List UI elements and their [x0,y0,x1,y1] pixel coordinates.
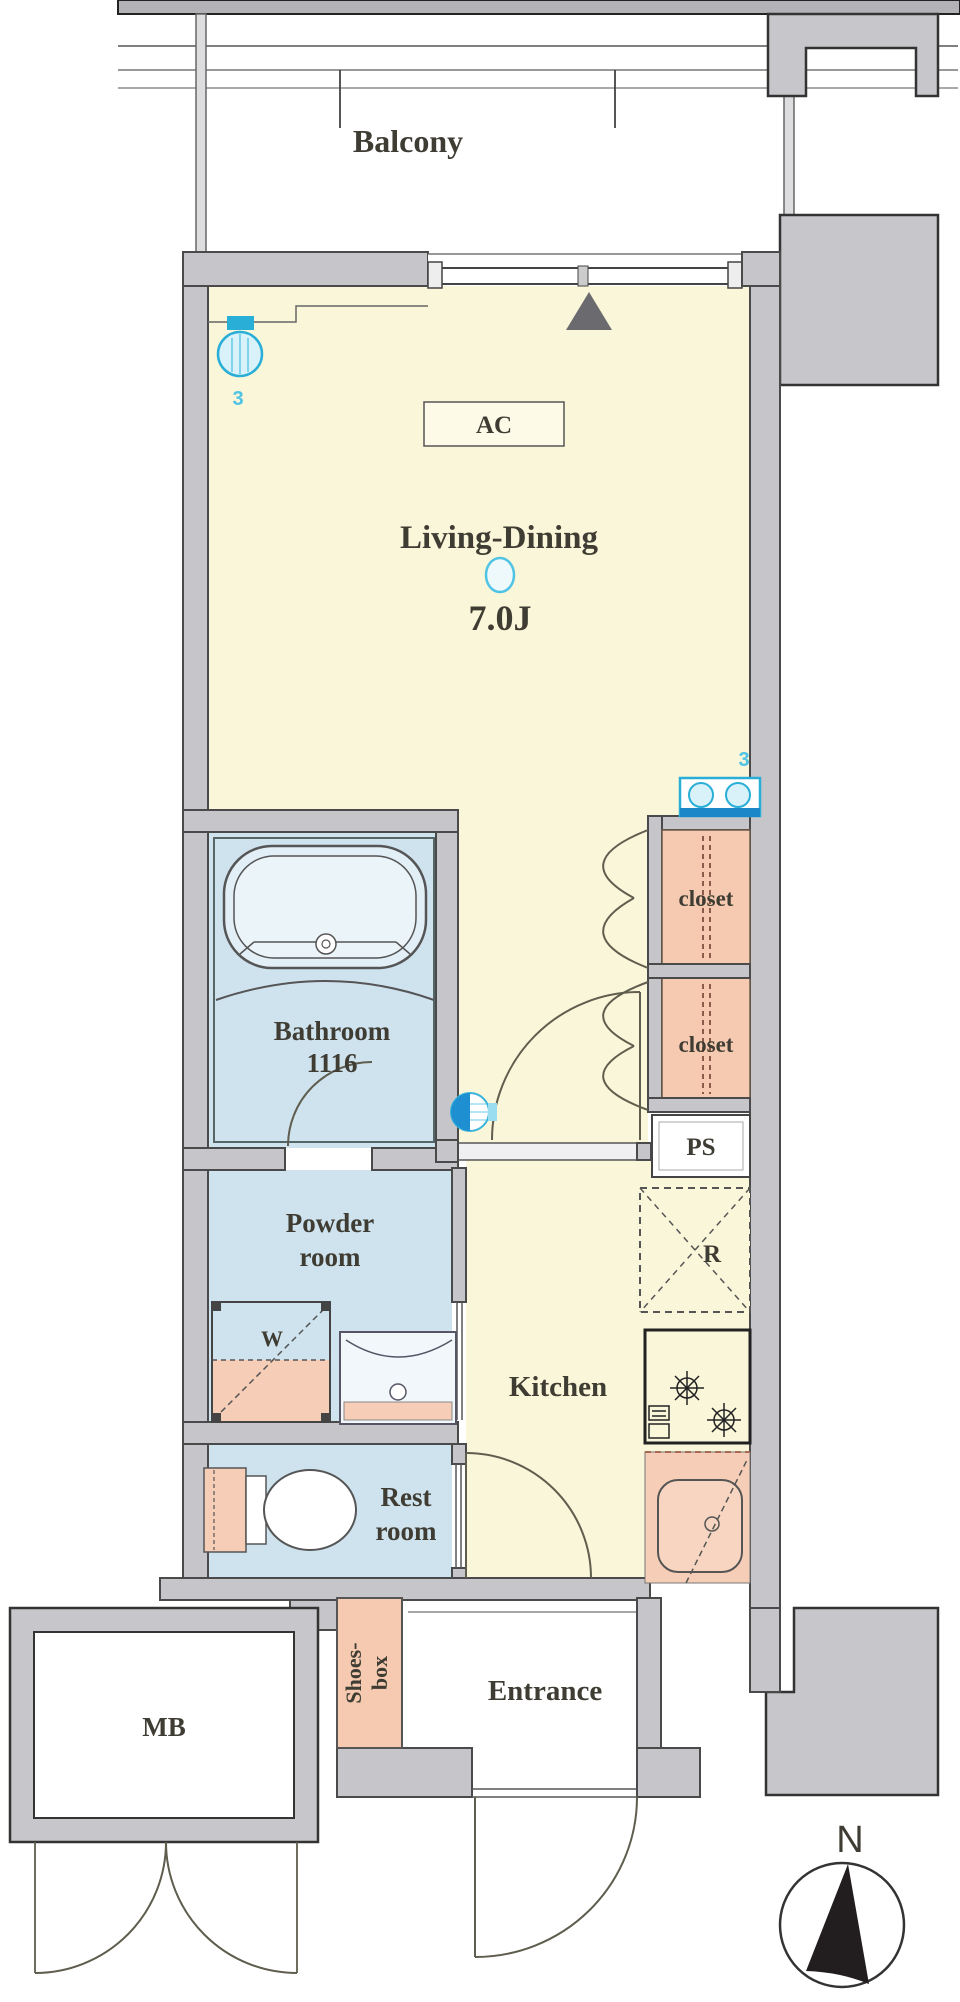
wall-light-tab [488,1103,497,1121]
wall-entrance-right-foot [637,1748,700,1797]
vanity-counter-strip [344,1402,452,1420]
closet-wall-top [648,816,750,830]
washer-label: W [261,1326,283,1351]
closet-light-count: 3 [738,749,749,771]
kitchen-label: Kitchen [509,1371,607,1403]
washer-corner-post [321,1302,330,1311]
living-dining-label: Living-Dining [400,520,599,556]
closet-wall-divider [648,964,750,978]
wall-entrance-right [637,1598,661,1748]
ceiling-lights-base [680,808,760,817]
closet-wall-bottom [648,1098,750,1112]
light-point-icon [486,558,514,592]
pipe-space: PS [652,1115,750,1177]
balcony-divider-left [196,14,206,252]
wall-top [183,252,428,286]
rest-room-label-1: Rest [381,1482,432,1512]
balcony-label: Balcony [353,123,463,159]
sill-end-block [436,1140,458,1162]
building-beam [118,0,960,14]
kitchen-sink [658,1480,742,1572]
washer-corner-post [212,1413,221,1422]
wall-bottom-band [160,1578,650,1600]
hallway-door-sill [455,1143,645,1160]
wall-top-right-corner [742,252,780,286]
bathroom-label: Bathroom [274,1016,391,1046]
shoes-box-label-1: Shoes- [341,1642,366,1703]
wall-bathroom-top [183,810,458,832]
wall-entrance-left-foot [337,1748,472,1797]
meter-box-label: MB [142,1712,186,1742]
balcony-divider-right [784,96,794,215]
window-frame-end [728,262,742,288]
ceiling-light-bulb [689,783,713,807]
rest-room-fixtures [204,1468,356,1552]
ps-label: PS [686,1134,715,1161]
structure-right [780,215,938,385]
mb-door-arc [35,1842,166,1973]
wall-powder-right [452,1168,466,1302]
powder-room-label-1: Powder [286,1208,374,1238]
shoes-box: Shoes- box [337,1598,402,1748]
pendant-light-cap [227,316,254,330]
wall-powder-rest-divider [183,1422,458,1444]
kitchen-fixtures: R [640,1188,750,1583]
closet-upper-label: closet [679,886,734,911]
structure-bottom-right [766,1608,938,1795]
closet-lower-label: closet [679,1032,734,1057]
compass-label: N [836,1819,863,1861]
refrigerator-label: R [703,1241,722,1268]
wall-right [750,286,780,1608]
bathtub-drain [316,934,336,954]
window-frame-end [428,262,442,288]
north-compass: N [780,1819,904,1987]
wall-left [183,252,208,1598]
floor-plan-svg: Balcony [0,0,960,2002]
stove-burner-icon [707,1403,741,1437]
living-dining-size: 7.0J [469,598,532,638]
ac-label: AC [476,412,512,439]
toilet-bowl [264,1470,356,1550]
rest-room-label-2: room [376,1516,437,1546]
washer-corner-post [212,1302,221,1311]
window-mullion [578,266,588,286]
washer-space-bottom [212,1360,330,1422]
shoes-box-label-2: box [367,1656,392,1690]
mb-door-arc [166,1842,297,1973]
ceiling-light-bulb [726,783,750,807]
sill-end-block [637,1143,651,1160]
rest-door-post [452,1444,466,1464]
living-light-count: 3 [232,388,243,410]
stove-burner-icon [670,1371,704,1405]
floor-plan-page: Balcony [0,0,960,2002]
powder-room-label-2: room [300,1242,361,1272]
washer-corner-post [321,1413,330,1422]
bathroom-size: 1116 [306,1048,357,1078]
vanity-drain [390,1384,406,1400]
toilet-tank [204,1468,246,1552]
meter-box: MB [10,1608,318,1973]
wall-powder-top-left [183,1148,285,1170]
structure-top-right [768,14,938,96]
wall-right-extension [750,1608,780,1692]
entrance-label: Entrance [488,1675,603,1707]
entrance-door-arc [475,1797,637,1957]
